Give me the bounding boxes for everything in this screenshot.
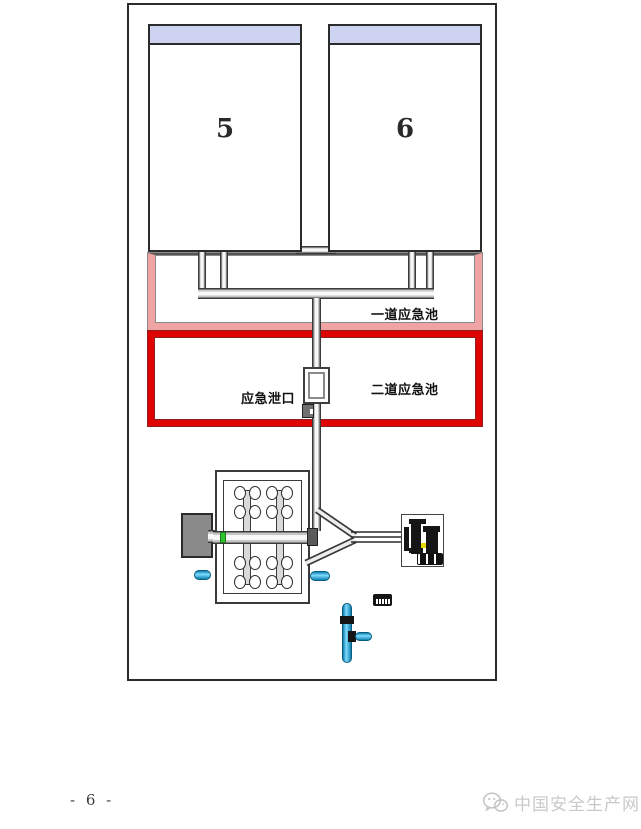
document-page: 5 6 一道应急池 二道应急池 应急泄口 <box>0 0 641 829</box>
exchanger-middle-pipe <box>213 531 310 544</box>
tank-5-top-band <box>150 26 300 45</box>
pump-valve-box <box>401 514 444 567</box>
pool2-label: 二道应急池 <box>371 379 439 398</box>
tank-5: 5 <box>148 24 302 252</box>
tube-circle <box>234 505 246 519</box>
tube-circle <box>249 505 261 519</box>
tube-circle <box>281 575 293 589</box>
outlet-valve-box <box>302 404 314 418</box>
tube-circle <box>234 575 246 589</box>
wechat-bubbles-icon <box>482 791 509 815</box>
emergency-outlet-box-inner <box>308 372 325 399</box>
left-blue-nozzle <box>194 570 211 580</box>
tank-6-top-band <box>330 26 480 45</box>
tank6-drain-pipe-inner <box>408 252 416 290</box>
tube-circle <box>234 556 246 570</box>
tank5-drain-pipe-inner <box>220 252 228 290</box>
emergency-outlet-label: 应急泄口 <box>241 388 295 407</box>
right-blue-nozzle <box>310 571 330 581</box>
tube-circle <box>266 575 278 589</box>
pipe-valve-band <box>340 616 354 624</box>
tube-circle <box>249 556 261 570</box>
page-number: - 6 - <box>70 791 114 809</box>
watermark-text: 中国安全生产网 <box>514 790 640 815</box>
tube-circle <box>281 486 293 500</box>
outlet-valve-tick <box>310 409 313 414</box>
pump-drum <box>417 553 443 565</box>
emergency-outlet-box <box>303 367 330 404</box>
tube-circle <box>249 486 261 500</box>
tank-5-label: 5 <box>150 114 300 144</box>
ruler-icon <box>373 594 392 606</box>
tube-circle <box>249 575 261 589</box>
tank5-drain-pipe-outer <box>198 252 206 290</box>
drop-pipe-connector <box>307 528 318 546</box>
tube-circle <box>266 556 278 570</box>
pool1-label: 一道应急池 <box>371 304 439 323</box>
tube-circle <box>281 556 293 570</box>
ruler-scale-strip <box>375 599 390 604</box>
blue-branch-pipe <box>355 632 372 641</box>
tube-circle <box>281 505 293 519</box>
watermark: 中国安全生产网 <box>482 790 640 815</box>
tube-circle <box>266 486 278 500</box>
indicator-dot <box>421 543 426 548</box>
tube-circle <box>234 486 246 500</box>
tank6-drain-pipe-outer <box>426 252 434 290</box>
tank-6-label: 6 <box>330 114 480 144</box>
green-valve <box>220 532 226 543</box>
tank-6: 6 <box>328 24 482 252</box>
tube-circle <box>266 505 278 519</box>
